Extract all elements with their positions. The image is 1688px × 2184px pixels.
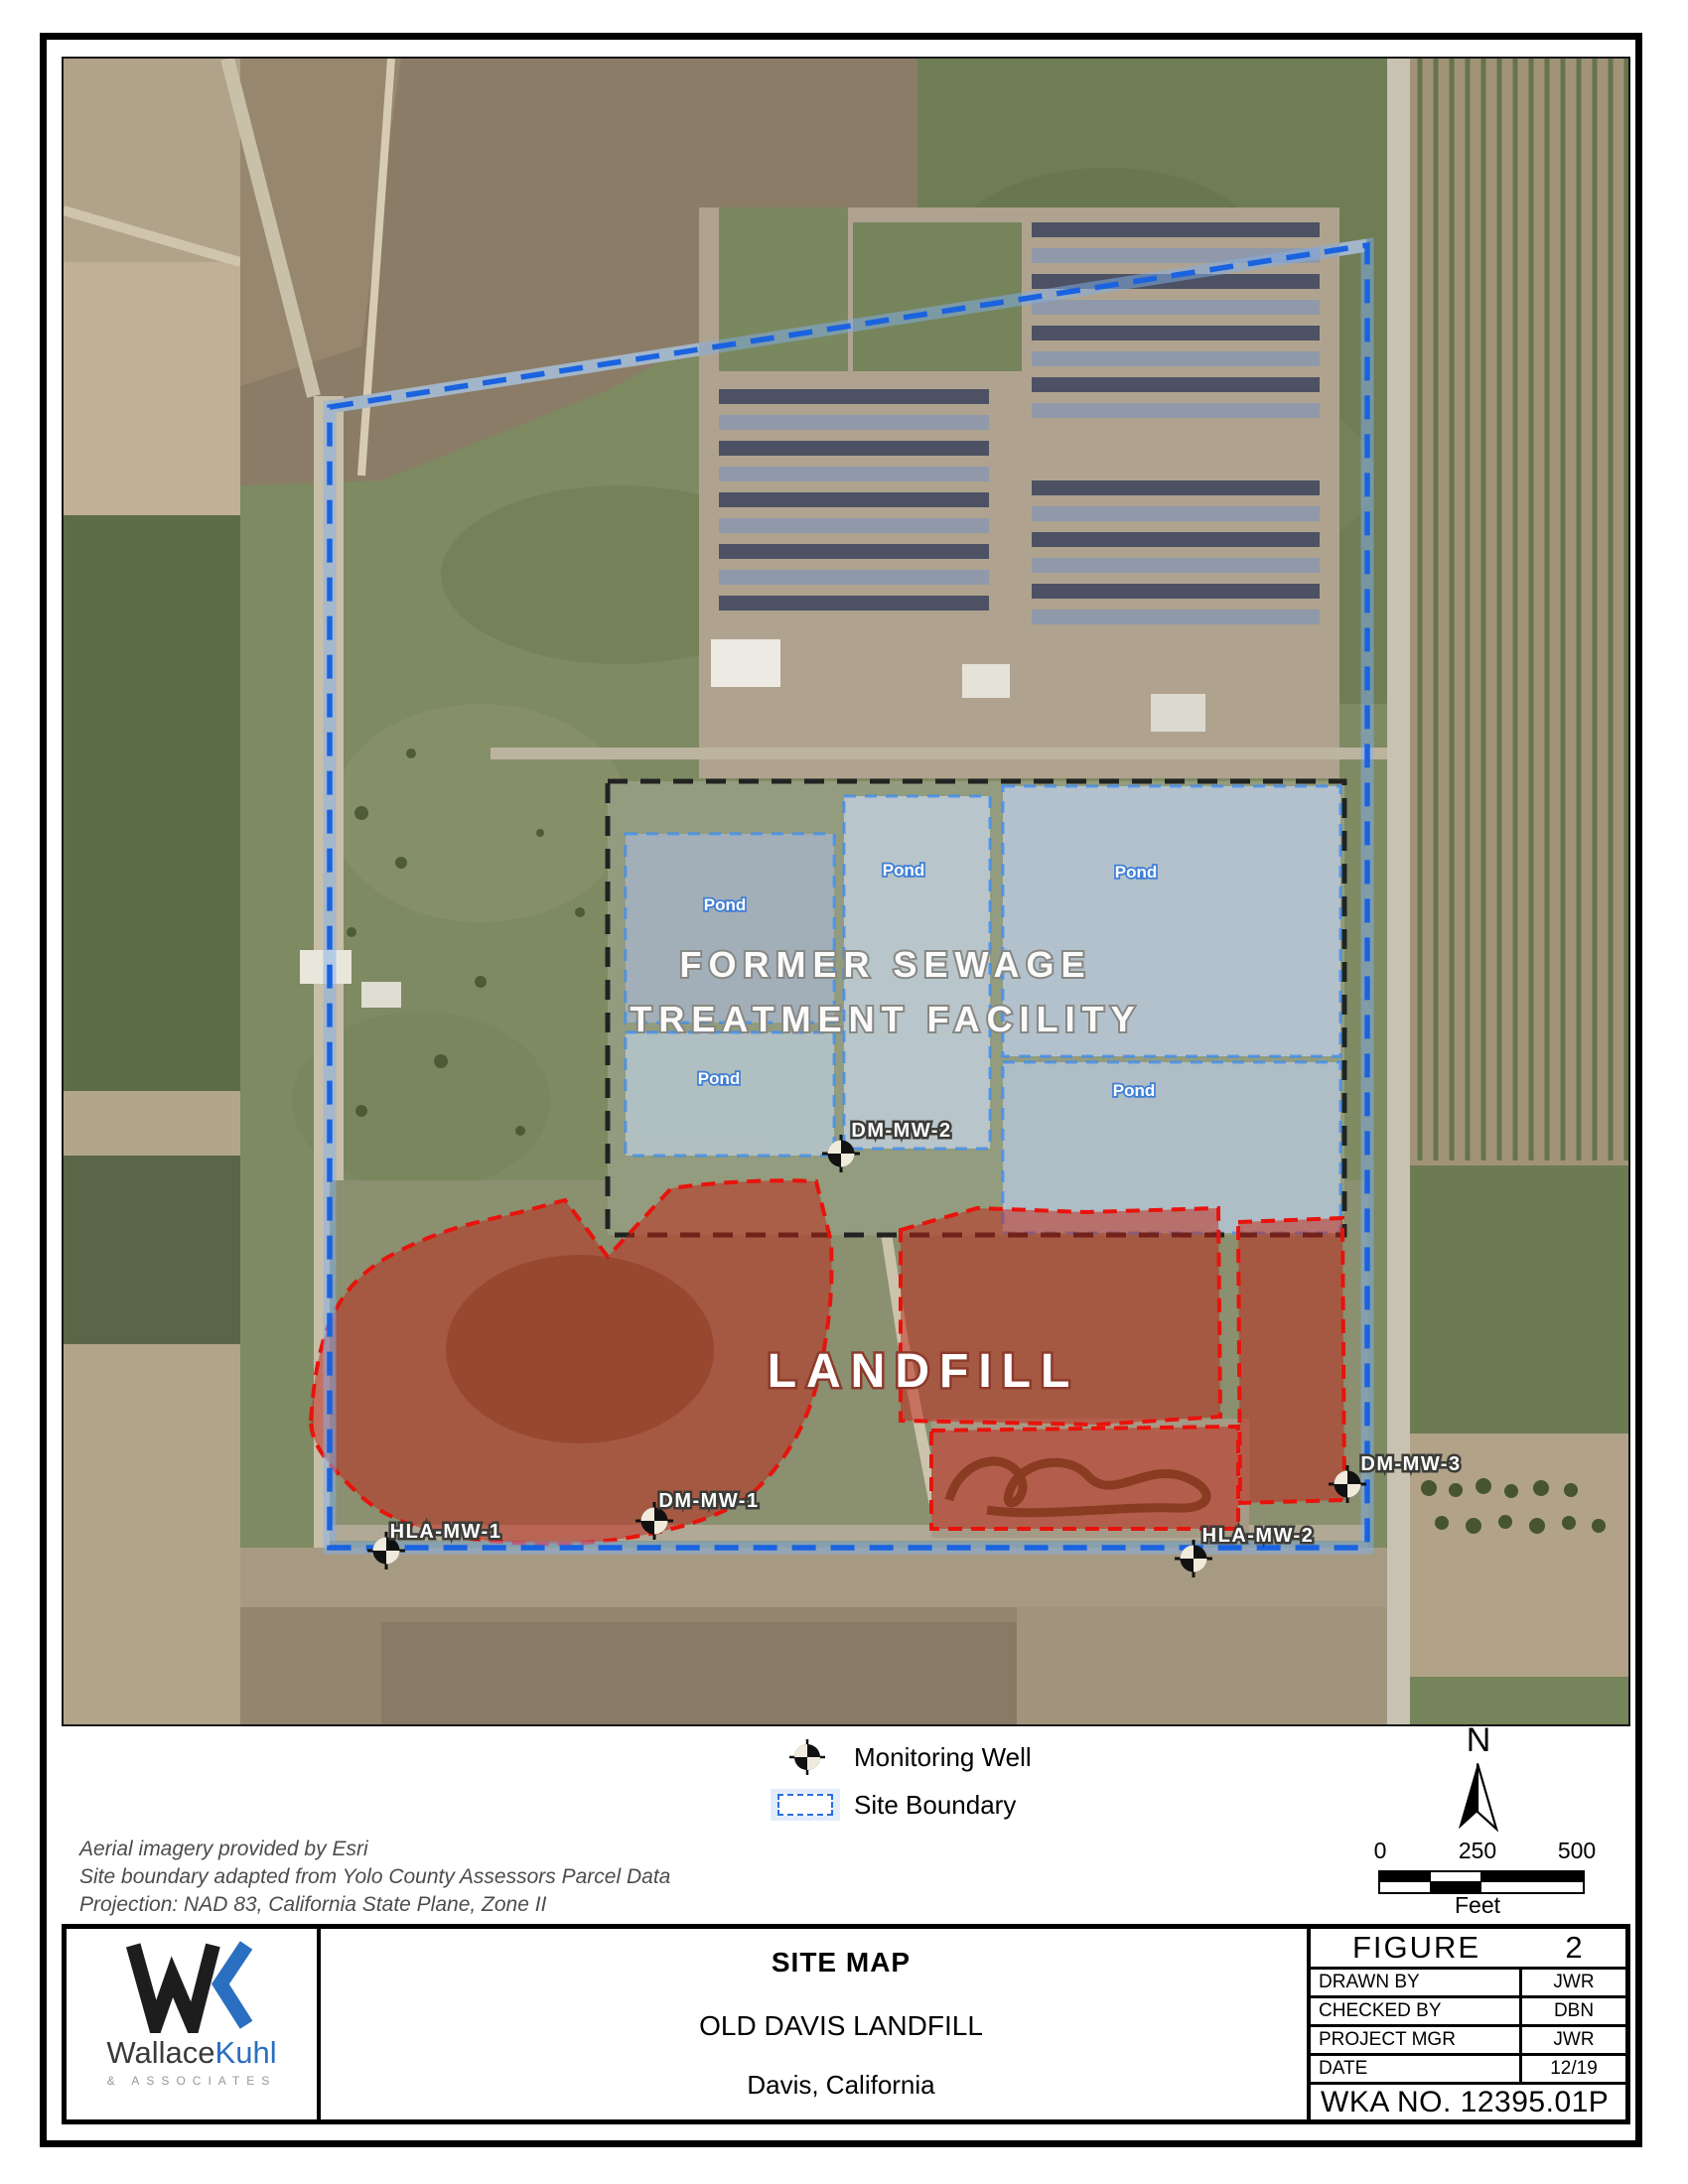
well-label: DM-MW-1 bbox=[658, 1490, 759, 1512]
project-location: Davis, California bbox=[747, 2070, 934, 2101]
scale-tick-0: 0 bbox=[1370, 1838, 1390, 1864]
pond-label: Pond bbox=[883, 861, 925, 880]
map-title: SITE MAP bbox=[772, 1947, 911, 1979]
note-imagery: Aerial imagery provided by Esri bbox=[79, 1836, 670, 1863]
well-label: DM-MW-3 bbox=[1360, 1453, 1461, 1475]
aerial-map-svg: Pond Pond Pond Pond Pond FORMER SEWAGE T… bbox=[64, 59, 1628, 1724]
table-row: DATE 12/19 bbox=[1311, 2056, 1625, 2085]
figure-number: 2 bbox=[1522, 1930, 1625, 1966]
table-row: CHECKED BY DBN bbox=[1311, 1998, 1625, 2027]
figure-label: FIGURE bbox=[1311, 1930, 1522, 1966]
logo-word-part1: Wallace bbox=[106, 2035, 214, 2070]
table-row: PROJECT MGR JWR bbox=[1311, 2027, 1625, 2056]
wka-number: WKA NO. 12395.01P bbox=[1311, 2085, 1625, 2119]
row-value: JWR bbox=[1519, 2027, 1625, 2053]
scale-bar bbox=[1378, 1870, 1585, 1894]
legend-monitoring-well-label: Monitoring Well bbox=[854, 1740, 1032, 1774]
north-label: N bbox=[1464, 1721, 1493, 1760]
figure-info-table: FIGURE 2 DRAWN BY JWR CHECKED BY DBN PRO… bbox=[1311, 1929, 1625, 2119]
landfill-mound bbox=[446, 1255, 714, 1443]
legend-site-boundary-swatch bbox=[771, 1789, 840, 1821]
logo-tagline: & ASSOCIATES bbox=[107, 2074, 276, 2088]
note-boundary-source: Site boundary adapted from Yolo County A… bbox=[79, 1863, 670, 1891]
facility-label-line2: TREATMENT FACILITY bbox=[630, 999, 1141, 1039]
scale-tick-500: 500 bbox=[1552, 1838, 1602, 1864]
legend-site-boundary-label: Site Boundary bbox=[854, 1788, 1016, 1822]
well-label: HLA-MW-2 bbox=[1202, 1525, 1315, 1547]
pond-label: Pond bbox=[698, 1069, 741, 1088]
map-notes: Aerial imagery provided by Esri Site bou… bbox=[79, 1836, 670, 1919]
project-name: OLD DAVIS LANDFILL bbox=[699, 2010, 983, 2042]
title-cell: SITE MAP OLD DAVIS LANDFILL Davis, Calif… bbox=[321, 1929, 1307, 2119]
row-value: JWR bbox=[1519, 1970, 1625, 1995]
scale-unit-label: Feet bbox=[1428, 1892, 1527, 1919]
figure-row: FIGURE 2 bbox=[1311, 1929, 1625, 1970]
row-value: 12/19 bbox=[1519, 2056, 1625, 2082]
title-block: WallaceKuhl & ASSOCIATES SITE MAP OLD DA… bbox=[62, 1924, 1630, 2124]
row-label: DATE bbox=[1311, 2058, 1519, 2080]
wallacekuhl-logo-mark bbox=[122, 1939, 261, 2033]
pond-label: Pond bbox=[1113, 1081, 1156, 1100]
facility-area: Pond Pond Pond Pond Pond FORMER SEWAGE T… bbox=[608, 781, 1344, 1235]
pond-label: Pond bbox=[704, 895, 747, 914]
pond-label: Pond bbox=[1115, 863, 1158, 882]
note-projection: Projection: NAD 83, California State Pla… bbox=[79, 1891, 670, 1919]
logo-cell: WallaceKuhl & ASSOCIATES bbox=[67, 1929, 317, 2119]
north-arrow-icon bbox=[1452, 1757, 1503, 1841]
facility-label-line1: FORMER SEWAGE bbox=[679, 944, 1091, 985]
logo-wordmark: WallaceKuhl bbox=[106, 2035, 276, 2071]
site-map-canvas: Pond Pond Pond Pond Pond FORMER SEWAGE T… bbox=[62, 57, 1630, 1726]
table-row: DRAWN BY JWR bbox=[1311, 1970, 1625, 1998]
scale-tick-250: 250 bbox=[1453, 1838, 1502, 1864]
legend-monitoring-well-icon bbox=[788, 1738, 826, 1776]
row-label: PROJECT MGR bbox=[1311, 2029, 1519, 2051]
logo-word-part2: Kuhl bbox=[215, 2035, 277, 2070]
figure-page: { "map": { "facility_label_line1": "FORM… bbox=[0, 0, 1688, 2184]
landfill-overlay-east bbox=[1238, 1218, 1344, 1503]
row-label: CHECKED BY bbox=[1311, 2000, 1519, 2022]
row-label: DRAWN BY bbox=[1311, 1972, 1519, 1993]
well-label: HLA-MW-1 bbox=[390, 1521, 502, 1543]
row-value: DBN bbox=[1519, 1998, 1625, 2024]
well-label: DM-MW-2 bbox=[851, 1120, 951, 1142]
landfill-label: LANDFILL bbox=[768, 1345, 1080, 1398]
